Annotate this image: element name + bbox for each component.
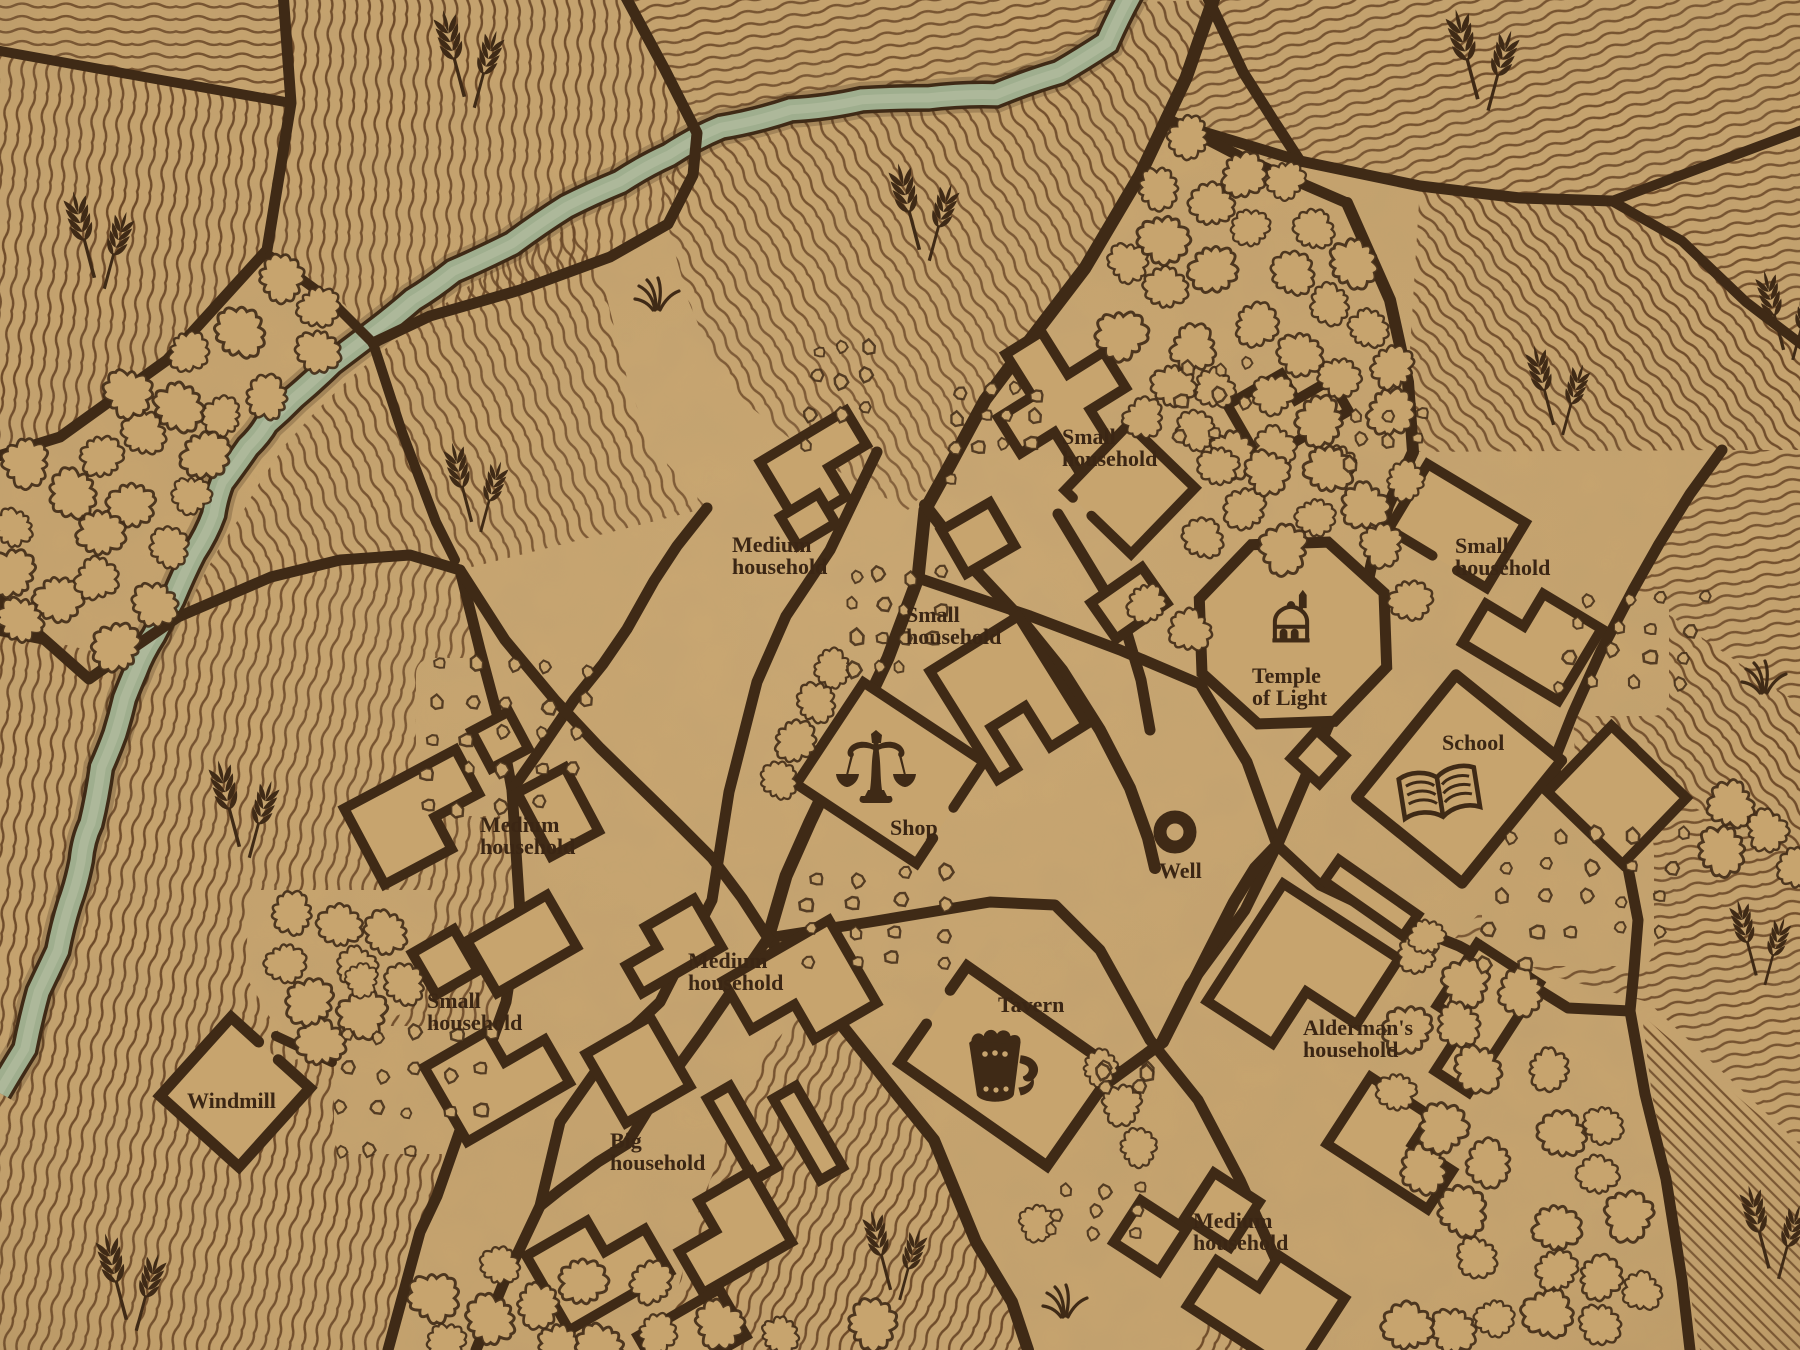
svg-text:household: household xyxy=(610,1150,705,1175)
svg-text:household: household xyxy=(1303,1037,1398,1062)
svg-text:household: household xyxy=(1062,446,1157,471)
svg-text:Windmill: Windmill xyxy=(187,1088,276,1113)
svg-text:household: household xyxy=(1193,1230,1288,1255)
svg-text:Tavern: Tavern xyxy=(998,992,1064,1017)
svg-text:of Light: of Light xyxy=(1252,685,1328,710)
svg-text:household: household xyxy=(427,1010,522,1035)
svg-text:Shop: Shop xyxy=(890,815,938,840)
svg-text:household: household xyxy=(480,834,575,859)
svg-text:household: household xyxy=(688,970,783,995)
svg-text:household: household xyxy=(732,554,827,579)
svg-text:household: household xyxy=(906,624,1001,649)
svg-text:household: household xyxy=(1455,555,1550,580)
svg-text:Well: Well xyxy=(1159,858,1202,883)
svg-text:School: School xyxy=(1442,730,1504,755)
